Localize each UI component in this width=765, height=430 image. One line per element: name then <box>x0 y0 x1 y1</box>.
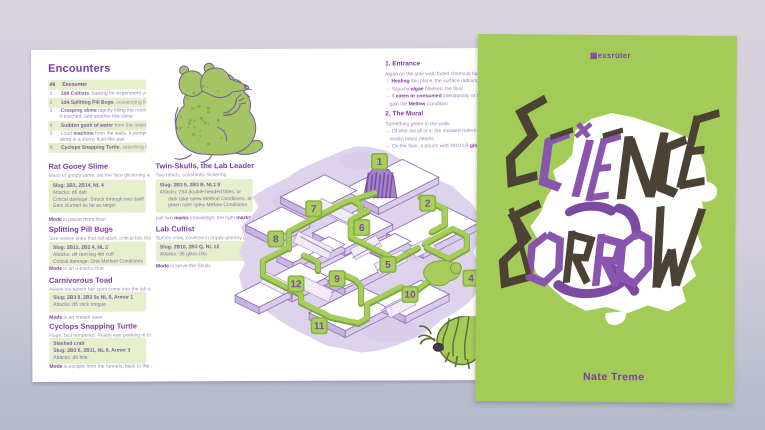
svg-text:9: 9 <box>334 274 340 285</box>
svg-text:7: 7 <box>311 204 317 215</box>
svg-text:1: 1 <box>377 157 383 168</box>
svg-text:8: 8 <box>273 234 279 245</box>
svg-text:11: 11 <box>314 321 325 332</box>
svg-text:4: 4 <box>468 273 474 284</box>
svg-text:10: 10 <box>404 290 416 301</box>
svg-text:2: 2 <box>425 199 431 210</box>
svg-text:6: 6 <box>359 223 365 234</box>
svg-text:12: 12 <box>290 279 302 290</box>
svg-text:5: 5 <box>385 260 391 271</box>
